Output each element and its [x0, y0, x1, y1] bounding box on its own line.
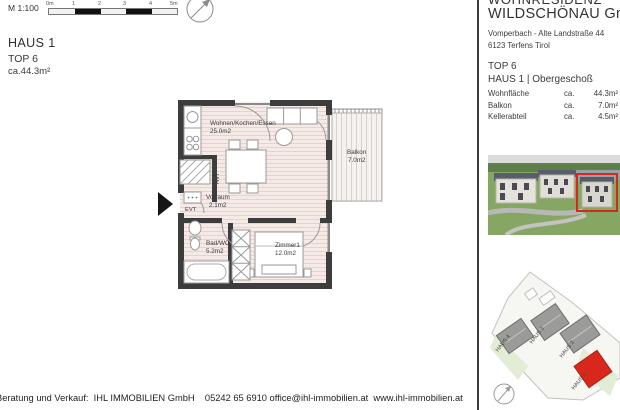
scale-bar-segment: [75, 9, 101, 14]
room-area-bad: 5.2m2: [206, 248, 224, 255]
label-hvt: HVT: [215, 172, 221, 184]
scale-tick: 4: [149, 1, 152, 7]
company-name-line2: WILDSCHÖNAU GmbH: [488, 6, 620, 22]
dining-table: [226, 140, 266, 193]
kitchen-sink-icon: [187, 112, 198, 123]
plan-title-haus: HAUS 1: [8, 36, 56, 50]
floorplan-drawing: Wohnen/Kochen/Essen 25.0m2 Vorraum 2.1m2…: [150, 80, 400, 300]
scale-label: M 1:100: [8, 3, 39, 13]
company-address-line1: Vomperbach - Alte Landstraße 44: [488, 29, 604, 38]
room-label-balkon: Balkon: [347, 149, 367, 156]
detail-label: Wohnfläche: [488, 89, 564, 98]
detail-value: 44.3m²: [582, 89, 618, 98]
room-area-balkon: 7.0m2: [348, 157, 366, 164]
detail-ca: ca.: [564, 89, 582, 98]
detail-label: Kellerabteil: [488, 112, 564, 121]
wardrobe: [232, 230, 250, 280]
room-label-bad: Bad/WC: [206, 240, 230, 247]
scale-tick: 0m: [46, 1, 54, 7]
detail-label: Balkon: [488, 101, 564, 110]
detail-ca: ca.: [564, 101, 582, 110]
entrance-arrow-icon: [158, 192, 173, 216]
detail-row-kellerabteil: Kellerabteil ca. 4.5m²: [488, 112, 618, 124]
unit-detail-table: Wohnfläche ca. 44.3m² Balkon ca. 7.0m² K…: [488, 89, 618, 124]
room-label-zimmer: Zimmer1: [275, 242, 300, 249]
coat-closet: [180, 160, 210, 184]
unit-floor: HAUS 1 | Obergeschoß: [488, 74, 593, 85]
balcony-railing: [332, 109, 382, 113]
room-area-living: 25.0m2: [210, 128, 232, 135]
panel-divider: [477, 0, 479, 410]
room-area-zimmer: 12.0m2: [275, 250, 297, 257]
round-table: [276, 129, 293, 146]
washbasin-icon: [189, 221, 201, 235]
plan-title-top: TOP 6: [8, 53, 38, 65]
wc-icon: [190, 237, 200, 250]
kitchen-counter: [184, 106, 201, 155]
detail-ca: ca.: [564, 112, 582, 121]
bathtub: [184, 261, 229, 283]
detail-value: 7.0m²: [582, 101, 618, 110]
footer-contact: Beratung und Verkauf: IHL IMMOBILIEN Gmb…: [0, 393, 463, 403]
site-north-arrow-icon: [494, 384, 514, 404]
plan-title-area: ca.44.3m²: [8, 66, 50, 77]
room-label-vorraum: Vorraum: [206, 194, 230, 201]
unit-title: TOP 6: [488, 61, 517, 72]
floorplan-page: M 1:100 0m 1 2 3 4 5m HAUS 1 TOP 6 ca.44…: [0, 0, 620, 410]
scale-tick: 5m: [170, 1, 178, 7]
label-evt: EVT: [185, 207, 197, 213]
scale-bar: 0m 1 2 3 4 5m: [48, 1, 177, 16]
north-arrow-icon: [183, 0, 217, 26]
company-address-line2: 6123 Terfens Tirol: [488, 41, 550, 50]
site-plan: HAUS 4 HAUS 3 HAUS 2 HAUS 1: [488, 248, 620, 410]
scale-tick: 3: [123, 1, 126, 7]
room-area-vorraum: 2.1m2: [209, 202, 227, 209]
detail-value: 4.5m²: [582, 112, 618, 121]
scale-tick: 2: [98, 1, 101, 7]
shoe-cabinet: [184, 192, 201, 203]
rendered-building-highlighted: [577, 174, 617, 211]
rendered-building-middle: [538, 170, 576, 198]
project-rendering-image: [488, 155, 620, 235]
scale-tick: 1: [72, 1, 75, 7]
room-label-living: Wohnen/Kochen/Essen: [210, 120, 276, 127]
scale-bar-track: [48, 8, 178, 15]
detail-row-wohnflaeche: Wohnfläche ca. 44.3m²: [488, 89, 618, 101]
rendered-building-left: [494, 173, 538, 203]
scale-bar-segment: [126, 9, 152, 14]
detail-row-balkon: Balkon ca. 7.0m²: [488, 101, 618, 113]
